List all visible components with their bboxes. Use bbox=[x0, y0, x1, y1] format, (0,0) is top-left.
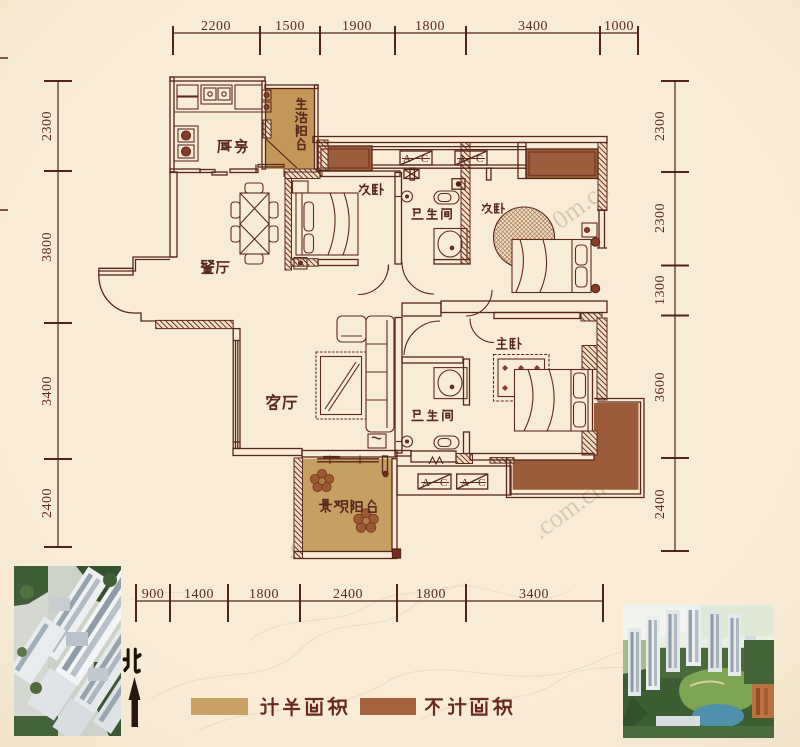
svg-text:3400: 3400 bbox=[519, 587, 549, 602]
svg-text:2200: 2200 bbox=[201, 19, 231, 34]
svg-text:3400: 3400 bbox=[518, 19, 548, 34]
svg-text:2400: 2400 bbox=[653, 489, 668, 519]
svg-text:2300: 2300 bbox=[40, 111, 55, 141]
svg-text:1800: 1800 bbox=[249, 587, 279, 602]
svg-text:1500: 1500 bbox=[275, 19, 305, 34]
svg-text:3800: 3800 bbox=[40, 232, 55, 262]
svg-text:2400: 2400 bbox=[40, 488, 55, 518]
svg-text:3400: 3400 bbox=[40, 376, 55, 406]
svg-text:1400: 1400 bbox=[184, 587, 214, 602]
svg-text:1900: 1900 bbox=[342, 19, 372, 34]
svg-text:1800: 1800 bbox=[416, 587, 446, 602]
svg-text:3600: 3600 bbox=[653, 372, 668, 402]
svg-text:1000: 1000 bbox=[604, 19, 634, 34]
svg-text:1300: 1300 bbox=[653, 275, 668, 305]
svg-text:2300: 2300 bbox=[653, 111, 668, 141]
svg-text:1800: 1800 bbox=[415, 19, 445, 34]
svg-text:900: 900 bbox=[142, 587, 165, 602]
svg-text:2400: 2400 bbox=[333, 587, 363, 602]
svg-text:2300: 2300 bbox=[653, 203, 668, 233]
